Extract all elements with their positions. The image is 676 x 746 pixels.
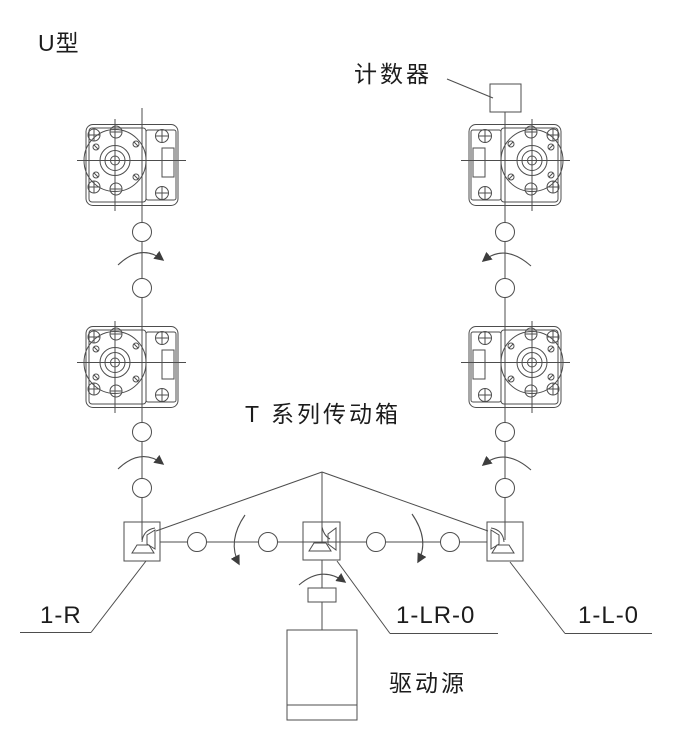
- coupling: [367, 533, 386, 552]
- coupling: [496, 423, 515, 442]
- counter-leader-line: [447, 79, 493, 98]
- gearbox-top-left: [77, 119, 186, 211]
- gearbox-top-right: [461, 119, 570, 211]
- coupling: [133, 279, 152, 298]
- drive-source-label: 驱动源: [389, 671, 467, 696]
- rotation-arrow-horizontal-right: [412, 514, 423, 562]
- coupling: [496, 479, 515, 498]
- counter-box: [490, 84, 521, 112]
- diagram-canvas: [0, 0, 676, 746]
- bevel-gear-glyph: [491, 528, 504, 542]
- drive-source-box: [287, 630, 357, 720]
- layout-type-label: U型: [38, 31, 80, 56]
- coupling: [188, 533, 207, 552]
- counter-label: 计数器: [354, 62, 432, 87]
- bevel-gear-glyph: [142, 528, 155, 542]
- coupling: [133, 223, 152, 242]
- gearbox-series-label: T 系列传动箱: [245, 402, 401, 427]
- rotation-arrow-right-bottom: [483, 457, 531, 470]
- coupling: [496, 279, 515, 298]
- coupling: [133, 423, 152, 442]
- model-label-left: 1-R: [40, 603, 82, 629]
- coupling: [259, 533, 278, 552]
- bevel-gear-glyph: [147, 530, 155, 549]
- bevel-gear-glyph: [491, 530, 499, 549]
- drive-coupling: [308, 588, 336, 602]
- rotation-arrow-left-bottom: [118, 457, 163, 469]
- counter-assembly: [447, 79, 521, 112]
- model-label-right: 1-L-0: [578, 603, 639, 629]
- diagram-page: U型 计数器 T 系列传动箱 1-R 1-LR-0 1-L-0 驱动源: [0, 0, 676, 746]
- model-label-center: 1-LR-0: [396, 603, 475, 629]
- gearbox-bottom-left: [77, 321, 186, 413]
- rotation-arrow-right-top: [483, 253, 531, 266]
- gearbox-bottom-right: [461, 321, 570, 413]
- rotation-arrow-horizontal-left: [234, 515, 245, 564]
- coupling: [133, 479, 152, 498]
- coupling: [496, 223, 515, 242]
- rotation-arrow-left-top: [118, 253, 163, 265]
- coupling: [441, 533, 460, 552]
